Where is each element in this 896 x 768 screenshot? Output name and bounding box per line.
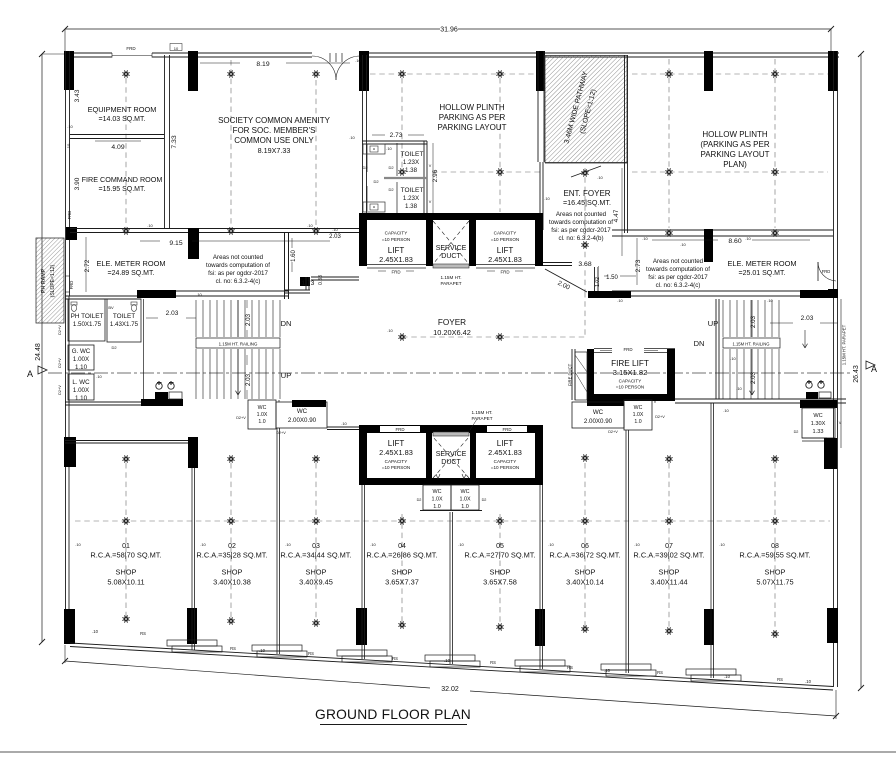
svg-text:D2: D2 [417, 498, 422, 502]
svg-text:D2+V: D2+V [655, 415, 665, 419]
svg-text:1.50: 1.50 [606, 275, 618, 281]
svg-text:PARKING LAYOUT: PARKING LAYOUT [437, 123, 506, 132]
svg-text:cl. no: 6.3.2-4(b): cl. no: 6.3.2-4(b) [558, 235, 603, 242]
svg-text:.10: .10 [548, 542, 554, 547]
svg-text:1.43X1.75: 1.43X1.75 [110, 321, 139, 328]
svg-text:1.23X: 1.23X [403, 159, 419, 166]
svg-text:=10 PERSON: =10 PERSON [491, 237, 519, 242]
svg-text:D2+V: D2+V [58, 385, 62, 395]
svg-text:1.00X: 1.00X [73, 387, 89, 394]
svg-text:=16.45|SQ.MT.: =16.45|SQ.MT. [563, 198, 611, 207]
svg-text:1.38: 1.38 [405, 203, 418, 210]
svg-text:CAPACITY: CAPACITY [494, 459, 517, 464]
svg-text:fsi: as per cgdcr-2017: fsi: as per cgdcr-2017 [648, 274, 708, 281]
svg-text:.10: .10 [604, 668, 610, 673]
svg-text:1.30X: 1.30X [811, 421, 826, 427]
svg-text:3.40X9.45: 3.40X9.45 [299, 578, 333, 587]
svg-text:5.08X10.11: 5.08X10.11 [107, 578, 144, 587]
svg-text:1.0X: 1.0X [459, 497, 470, 503]
svg-text:G. WC: G. WC [72, 348, 91, 355]
svg-text:CAPACITY: CAPACITY [619, 379, 642, 384]
svg-text:=10 PERSON: =10 PERSON [616, 385, 644, 390]
svg-text:GROUND FLOOR PLAN: GROUND FLOOR PLAN [315, 707, 471, 722]
svg-text:PLAN): PLAN) [723, 160, 747, 169]
svg-text:1.60: 1.60 [291, 250, 297, 262]
svg-text:2.00X0.90: 2.00X0.90 [584, 418, 613, 425]
svg-text:2.03: 2.03 [166, 310, 179, 317]
svg-text:24.48: 24.48 [35, 343, 42, 361]
svg-text:1.15M HT.: 1.15M HT. [472, 410, 493, 415]
svg-text:9.15: 9.15 [169, 240, 182, 247]
svg-text:26.43: 26.43 [853, 365, 860, 383]
svg-text:RS: RS [392, 656, 398, 661]
svg-text:4.47: 4.47 [613, 209, 620, 222]
svg-text:R.C.A.=35|28 SQ.MT.: R.C.A.=35|28 SQ.MT. [196, 551, 267, 560]
svg-text:LIFT: LIFT [388, 439, 405, 448]
svg-text:05: 05 [496, 543, 504, 550]
svg-text:3.90: 3.90 [74, 177, 81, 190]
svg-text:.10: .10 [745, 236, 751, 241]
svg-text:D2: D2 [111, 345, 117, 350]
svg-text:FIRE LIFT: FIRE LIFT [611, 359, 649, 368]
svg-text:TOILET: TOILET [401, 151, 424, 158]
svg-text:D2+V: D2+V [58, 325, 62, 335]
svg-text:01: 01 [122, 543, 130, 550]
svg-text:towards computation of: towards computation of [206, 262, 270, 269]
svg-text:D2+V: D2+V [236, 416, 246, 420]
svg-text:FRD: FRD [623, 347, 632, 352]
svg-text:LIFT: LIFT [497, 246, 514, 255]
svg-text:SHOP: SHOP [306, 568, 327, 577]
svg-text:.10: .10 [723, 408, 729, 413]
svg-text:.10: .10 [444, 658, 450, 663]
svg-text:31.96: 31.96 [440, 27, 458, 34]
svg-text:2.45X1.83: 2.45X1.83 [488, 255, 522, 264]
svg-text:RS: RS [490, 660, 496, 665]
svg-text:3.40X11.44: 3.40X11.44 [650, 578, 687, 587]
svg-text:V: V [429, 200, 432, 204]
svg-text:2.45X1.83: 2.45X1.83 [488, 448, 522, 457]
svg-text:07: 07 [665, 543, 673, 550]
svg-text:1.0: 1.0 [433, 504, 441, 510]
svg-text:.10: .10 [387, 328, 393, 333]
svg-text:Areas not counted: Areas not counted [556, 211, 607, 218]
svg-text:UP: UP [708, 319, 718, 328]
svg-text:=10 PERSON: =10 PERSON [382, 465, 410, 470]
svg-text:.10: .10 [680, 242, 686, 247]
svg-text:D2+V: D2+V [608, 430, 618, 434]
svg-text:04: 04 [398, 543, 406, 550]
svg-text:.10: .10 [196, 292, 202, 297]
svg-text:RS: RS [777, 677, 783, 682]
svg-text:PARKING LAYOUT: PARKING LAYOUT [700, 150, 769, 159]
svg-text:SHOP: SHOP [490, 568, 511, 577]
svg-text:PH TOILET: PH TOILET [71, 313, 104, 320]
svg-text:1.15M HT. PARAPET: 1.15M HT. PARAPET [842, 324, 847, 365]
svg-text:towards computation of: towards computation of [646, 266, 710, 273]
svg-text:.10: .10 [386, 146, 392, 151]
svg-text:WC: WC [297, 408, 308, 415]
svg-text:D2: D2 [362, 165, 368, 170]
svg-text:4.09: 4.09 [111, 144, 124, 151]
svg-text:PARAPET: PARAPET [471, 416, 492, 421]
svg-text:1.02: 1.02 [595, 277, 601, 287]
svg-text:2.03: 2.03 [801, 315, 814, 322]
svg-text:.10: .10 [75, 542, 81, 547]
svg-text:RS: RS [140, 631, 146, 636]
svg-text:.10: .10 [67, 124, 73, 129]
svg-text:.10: .10 [730, 356, 736, 361]
svg-text:.10: .10 [147, 223, 153, 228]
svg-text:.10: .10 [259, 648, 265, 653]
svg-text:D2+V: D2+V [276, 431, 286, 435]
svg-text:R.C.A.=26|86 SQ.MT.: R.C.A.=26|86 SQ.MT. [366, 551, 437, 560]
svg-text:SOCIETY COMMON AMENITY: SOCIETY COMMON AMENITY [218, 116, 331, 125]
svg-text:.10: .10 [805, 679, 811, 684]
svg-text:FRD: FRD [502, 427, 511, 432]
svg-text:=14.03 SQ.MT.: =14.03 SQ.MT. [99, 116, 146, 123]
svg-text:=24.89 SQ.MT.: =24.89 SQ.MT. [108, 270, 155, 277]
svg-text:WC: WC [634, 405, 643, 411]
svg-text:SERVICE: SERVICE [436, 245, 467, 252]
svg-text:R.C.A.=39|02 SQ.MT.: R.C.A.=39|02 SQ.MT. [633, 551, 704, 560]
svg-text:HOLLOW PLINTH: HOLLOW PLINTH [702, 130, 768, 139]
svg-text:2.00X0.90: 2.00X0.90 [288, 417, 317, 424]
svg-text:2.45X1.83: 2.45X1.83 [379, 448, 413, 457]
svg-text:2.03: 2.03 [245, 313, 252, 326]
svg-text:D2: D2 [388, 165, 394, 170]
svg-text:1.15M HT. RAILING: 1.15M HT. RAILING [219, 342, 258, 347]
svg-text:PARAPET: PARAPET [440, 281, 461, 286]
svg-text:3.40X10.14: 3.40X10.14 [566, 578, 604, 587]
svg-text:PARKING AS PER: PARKING AS PER [439, 113, 506, 122]
svg-text:2.03: 2.03 [329, 234, 341, 240]
svg-text:1.10: 1.10 [75, 364, 88, 371]
svg-text:.10: .10 [370, 542, 376, 547]
svg-text:.10: .10 [341, 421, 347, 426]
svg-text:R.C.A.=59|55 SQ.MT.: R.C.A.=59|55 SQ.MT. [739, 551, 810, 560]
svg-text:2.73: 2.73 [635, 259, 642, 272]
svg-text:SHOP: SHOP [575, 568, 596, 577]
svg-text:.10: .10 [642, 236, 648, 241]
svg-text:3.65X7.37: 3.65X7.37 [385, 578, 419, 587]
svg-text:FRD: FRD [500, 270, 509, 275]
svg-text:1.0X: 1.0X [257, 412, 268, 418]
svg-text:PH RAMP: PH RAMP [41, 268, 47, 293]
svg-text:1.38: 1.38 [405, 167, 418, 174]
svg-text:.10: .10 [634, 542, 640, 547]
svg-text:Areas not counted: Areas not counted [653, 258, 704, 265]
svg-text:.10: .10 [285, 542, 291, 547]
svg-text:FOR SOC. MEMBER'S: FOR SOC. MEMBER'S [233, 126, 316, 135]
svg-text:SHOP: SHOP [765, 568, 786, 577]
svg-text:CAPACITY: CAPACITY [385, 459, 408, 464]
svg-text:A: A [27, 369, 33, 379]
svg-text:.10: .10 [719, 542, 725, 547]
svg-text:2.03: 2.03 [750, 315, 757, 328]
svg-text:10.20X6.42: 10.20X6.42 [433, 328, 471, 337]
svg-text:LIFT: LIFT [388, 246, 405, 255]
svg-text:1.23X: 1.23X [403, 195, 419, 202]
svg-text:8.19: 8.19 [256, 61, 269, 68]
svg-text:1.50X1.75: 1.50X1.75 [73, 321, 102, 328]
svg-text:=10 PERSON: =10 PERSON [382, 237, 410, 242]
svg-text:.10: .10 [544, 196, 550, 201]
svg-text:FRD: FRD [67, 211, 72, 220]
svg-text:CAPACITY: CAPACITY [385, 231, 408, 236]
svg-text:.10: .10 [736, 386, 742, 391]
svg-text:1.0X: 1.0X [633, 412, 644, 418]
svg-text:towards computation of: towards computation of [549, 219, 613, 226]
svg-text:FOYER: FOYER [438, 318, 466, 327]
svg-text:TOILET: TOILET [113, 313, 135, 320]
svg-text:02: 02 [228, 543, 236, 550]
svg-text:0.83: 0.83 [318, 275, 324, 285]
svg-text:06: 06 [581, 543, 589, 550]
svg-text:RS: RS [657, 670, 663, 675]
svg-text:1.33: 1.33 [813, 429, 824, 435]
svg-text:TOILET: TOILET [401, 187, 424, 194]
svg-text:1.15M HT. RAILING: 1.15M HT. RAILING [732, 342, 769, 347]
svg-text:1.0X: 1.0X [431, 497, 442, 503]
svg-text:.10: .10 [200, 542, 206, 547]
svg-text:FRD: FRD [69, 281, 74, 290]
svg-text:R.C.A.=27|70 SQ.MT.: R.C.A.=27|70 SQ.MT. [464, 551, 535, 560]
svg-text:SERVICE: SERVICE [436, 451, 467, 458]
svg-text:.10: .10 [92, 629, 98, 634]
svg-text:2.73: 2.73 [390, 132, 403, 139]
svg-text:.10: .10 [724, 674, 730, 679]
svg-text:fsi: as per ogdcr-2017: fsi: as per ogdcr-2017 [208, 270, 268, 277]
svg-text:1.00X: 1.00X [73, 356, 89, 363]
svg-text:SHOP: SHOP [659, 568, 680, 577]
svg-text:DUCT: DUCT [441, 253, 461, 260]
svg-text:RS: RS [308, 651, 314, 656]
svg-text:2.45X1.83: 2.45X1.83 [379, 255, 413, 264]
svg-text:R.C.A.=36|72 SQ.MT.: R.C.A.=36|72 SQ.MT. [549, 551, 620, 560]
svg-text:WC: WC [258, 405, 267, 411]
svg-text:RS: RS [567, 665, 573, 670]
svg-text:FIRE COMMAND ROOM: FIRE COMMAND ROOM [82, 175, 163, 184]
svg-text:SHOP: SHOP [392, 568, 413, 577]
svg-text:FRD: FRD [395, 427, 404, 432]
svg-text:.10: .10 [597, 175, 603, 180]
svg-text:COMMON USE ONLY: COMMON USE ONLY [234, 136, 314, 145]
svg-text:.10: .10 [617, 298, 623, 303]
svg-text:(SLOPE=1:12): (SLOPE=1:12) [50, 264, 56, 297]
svg-text:R.C.A.=58|70 SQ.MT.: R.C.A.=58|70 SQ.MT. [90, 551, 161, 560]
svg-text:L. WC: L. WC [72, 379, 90, 386]
svg-text:.10: .10 [96, 374, 102, 379]
svg-text:SHOP: SHOP [116, 568, 137, 577]
svg-text:UP: UP [281, 371, 291, 380]
svg-text:D2+V: D2+V [58, 358, 62, 368]
svg-text:WC: WC [433, 489, 442, 495]
svg-text:3.43: 3.43 [74, 89, 81, 102]
svg-text:WC: WC [813, 413, 822, 419]
svg-text:ELE. METER ROOM: ELE. METER ROOM [728, 259, 797, 268]
svg-text:*: * [654, 401, 656, 407]
svg-text:8.60: 8.60 [728, 238, 741, 245]
svg-text:D2: D2 [373, 179, 379, 184]
svg-text:3.40X10.38: 3.40X10.38 [213, 578, 251, 587]
svg-text:CAPACITY: CAPACITY [494, 231, 517, 236]
svg-text:FRD: FRD [822, 269, 831, 274]
svg-text:1.0: 1.0 [461, 504, 469, 510]
svg-text:08: 08 [771, 543, 779, 550]
svg-text:5.07X11.75: 5.07X11.75 [756, 578, 793, 587]
svg-text:fsi: as per cgdcr-2017: fsi: as per cgdcr-2017 [551, 227, 611, 234]
svg-text:3.65X7.58: 3.65X7.58 [483, 578, 517, 587]
svg-text:WC: WC [593, 409, 604, 416]
svg-text:1.15M HT.: 1.15M HT. [441, 275, 462, 280]
svg-text:V: V [839, 421, 842, 425]
svg-text:DN: DN [281, 319, 292, 328]
svg-text:BV: BV [108, 305, 114, 310]
svg-text:.10: .10 [349, 135, 355, 140]
svg-text:SHOP: SHOP [222, 568, 243, 577]
svg-text:32.02: 32.02 [441, 686, 459, 693]
svg-text:cl. no: 6.3.2-4(c): cl. no: 6.3.2-4(c) [216, 278, 261, 285]
svg-text:cl. no: 6.3.2-4(c): cl. no: 6.3.2-4(c) [656, 282, 701, 289]
svg-text:=15.95 SQ.MT.: =15.95 SQ.MT. [99, 186, 146, 193]
svg-text:.10: .10 [458, 542, 464, 547]
svg-text:D2: D2 [794, 430, 799, 434]
svg-text:LIFT: LIFT [497, 439, 514, 448]
svg-text:ENT. FOYER: ENT. FOYER [563, 189, 610, 198]
svg-text:FRD: FRD [391, 270, 400, 275]
svg-text:FRD: FRD [126, 46, 136, 51]
svg-text:=25.01 SQ.MT.: =25.01 SQ.MT. [739, 270, 786, 277]
svg-text:(PARKING AS PER: (PARKING AS PER [700, 140, 769, 149]
svg-text:=10 PERSON: =10 PERSON [491, 465, 519, 470]
svg-text:D2: D2 [388, 187, 394, 192]
svg-text:1.0: 1.0 [634, 419, 641, 425]
svg-text:3.68: 3.68 [578, 261, 591, 268]
svg-text:V: V [429, 164, 432, 168]
svg-text:ELE. METER ROOM: ELE. METER ROOM [97, 259, 166, 268]
svg-text:EQUIPMENT ROOM: EQUIPMENT ROOM [88, 105, 157, 114]
svg-text:WC: WC [461, 489, 470, 495]
svg-text:1.10: 1.10 [75, 395, 88, 402]
svg-text:DN: DN [694, 339, 705, 348]
svg-text:.10: .10 [355, 58, 361, 63]
svg-text:*: * [278, 400, 280, 406]
svg-text:.10: .10 [767, 298, 773, 303]
svg-text:8.19X7.33: 8.19X7.33 [258, 146, 291, 155]
svg-text:2.03: 2.03 [245, 373, 252, 386]
svg-text:D2: D2 [482, 498, 487, 502]
svg-text:DUCT: DUCT [441, 459, 461, 466]
svg-text:1.0: 1.0 [258, 419, 265, 425]
svg-text:R.C.A.=34|44 SQ.MT.: R.C.A.=34|44 SQ.MT. [280, 551, 351, 560]
svg-text:3.15X1.82: 3.15X1.82 [613, 368, 648, 377]
svg-text:10: 10 [66, 143, 71, 148]
svg-text:RS: RS [230, 646, 236, 651]
svg-text:HOLLOW PLINTH: HOLLOW PLINTH [439, 103, 505, 112]
svg-text:03: 03 [312, 543, 320, 550]
svg-text:7.33: 7.33 [171, 135, 178, 148]
svg-text:1.73: 1.73 [302, 280, 315, 287]
svg-text:.10: .10 [307, 223, 313, 228]
svg-text:.10: .10 [332, 227, 338, 232]
svg-text:2.72: 2.72 [84, 259, 91, 272]
svg-text:2.03: 2.03 [750, 371, 757, 384]
svg-text:Areas not counted: Areas not counted [213, 254, 264, 261]
